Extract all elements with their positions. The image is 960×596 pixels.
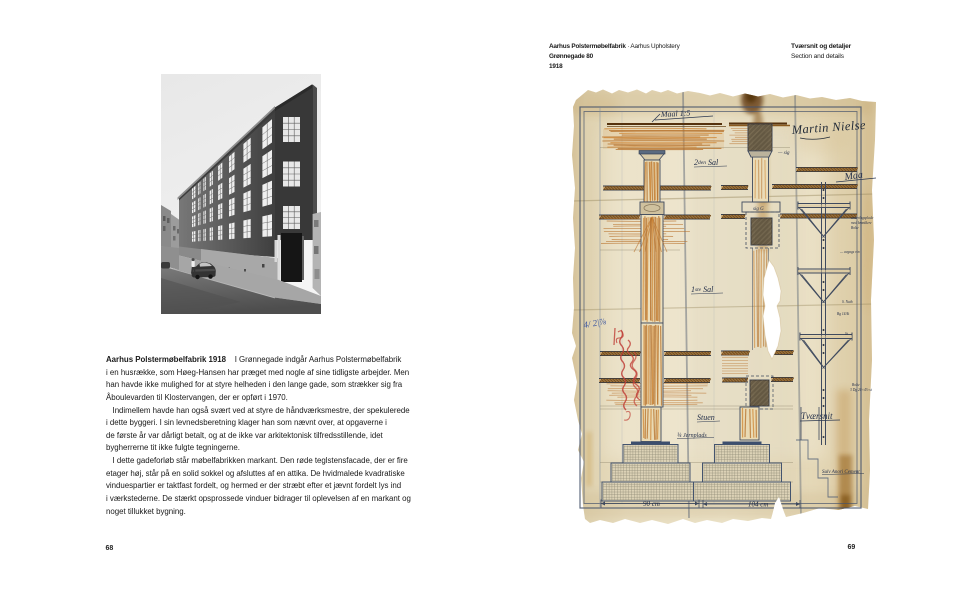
svg-text:underlagsplade: underlagsplade	[851, 216, 874, 220]
svg-text:104 cm: 104 cm	[748, 501, 768, 509]
svg-text:S. Nath: S. Nath	[842, 300, 853, 304]
svg-text:— avgags vin: — avgags vin	[839, 250, 860, 254]
svg-text:1ste Sal: 1ste Sal	[691, 285, 714, 294]
svg-text:3 Dg 20×4½ st: 3 Dg 20×4½ st	[850, 388, 873, 392]
svg-text:Maal 1:5: Maal 1:5	[660, 108, 691, 119]
svg-text:Stuen: Stuen	[697, 413, 715, 422]
svg-text:— sig: — sig	[777, 151, 790, 156]
svg-text:Tværsnit: Tværsnit	[801, 411, 833, 421]
svg-text:med bræddere: med bræddere	[851, 221, 872, 225]
svg-text:2den Sal: 2den Sal	[694, 158, 719, 167]
svg-text:St —: St —	[845, 332, 853, 336]
svg-text:90 cm: 90 cm	[643, 500, 660, 508]
svg-text:sig G: sig G	[753, 207, 764, 212]
svg-text:Bolte: Bolte	[851, 226, 859, 230]
svg-text:Bg 14/4t: Bg 14/4t	[837, 312, 850, 316]
svg-text:Bolte: Bolte	[852, 383, 860, 387]
